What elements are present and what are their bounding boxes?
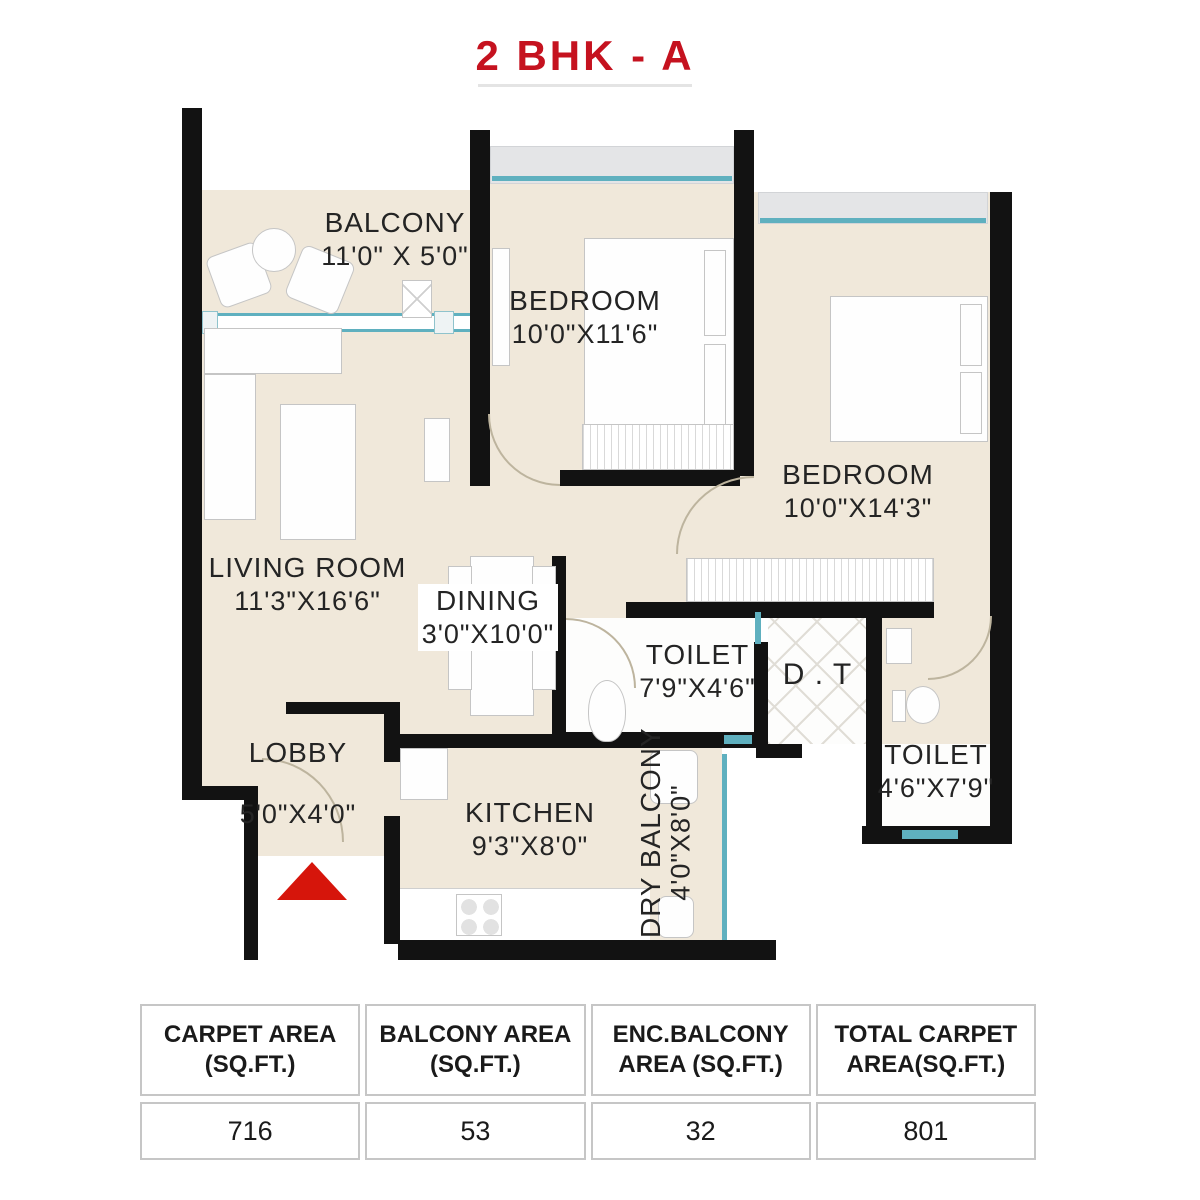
area-col-enc-balcony: ENC.BALCONY AREA (SQ.FT.) 32: [591, 1004, 811, 1160]
room-dims: 3'0"X10'0": [418, 618, 558, 651]
area-value-carpet: 716: [140, 1102, 360, 1160]
area-header-total-carpet: TOTAL CARPET AREA(SQ.FT.): [816, 1004, 1036, 1096]
entrance-arrow: [277, 862, 347, 900]
toilet-2-wc-tank: [892, 690, 906, 722]
bedroom-2-pillow-2: [960, 372, 982, 434]
room-dims: 10'0"X14'3": [733, 492, 983, 525]
room-dims: 7'9"X4'6": [600, 672, 795, 705]
room-label-toilet-1: TOILET 7'9"X4'6": [600, 638, 795, 705]
toilet-2-wc-bowl: [906, 686, 940, 724]
room-dims: 9'3"X8'0": [420, 830, 640, 863]
area-value-total-carpet: 801: [816, 1102, 1036, 1160]
room-name: BALCONY: [270, 206, 520, 240]
room-name: DINING: [418, 584, 558, 618]
living-side-unit: [424, 418, 450, 482]
room-name: BEDROOM: [733, 458, 983, 492]
toilet-2-window: [902, 830, 958, 839]
bedroom-2-wardrobe: [686, 558, 934, 602]
area-value-balcony: 53: [365, 1102, 585, 1160]
area-header-carpet: CARPET AREA (SQ.FT.): [140, 1004, 360, 1096]
room-name: KITCHEN: [420, 796, 640, 830]
area-header-balcony: BALCONY AREA (SQ.FT.): [365, 1004, 585, 1096]
room-label-bedroom-1: BEDROOM 10'0"X11'6": [460, 284, 710, 351]
room-name: LOBBY: [218, 736, 378, 770]
wall-bottom: [398, 940, 776, 960]
room-label-duct: D . T: [770, 658, 865, 692]
dining-chair-2: [448, 648, 472, 690]
wall-corridor: [626, 602, 934, 618]
header-line-2: (SQ.FT.): [142, 1050, 358, 1080]
room-name: LIVING ROOM: [185, 551, 430, 585]
room-label-dining: DINING 3'0"X10'0": [418, 584, 558, 651]
bedroom-2-pillow-1: [960, 304, 982, 366]
area-col-total-carpet: TOTAL CARPET AREA(SQ.FT.) 801: [816, 1004, 1036, 1160]
wall-bedroom-1-bottom: [560, 470, 740, 486]
area-header-enc-balcony: ENC.BALCONY AREA (SQ.FT.): [591, 1004, 811, 1096]
wall-lobby-right-lower: [384, 816, 400, 944]
area-col-carpet: CARPET AREA (SQ.FT.) 716: [140, 1004, 360, 1160]
area-table: CARPET AREA (SQ.FT.) 716 BALCONY AREA (S…: [140, 1004, 1036, 1160]
header-line-2: AREA(SQ.FT.): [818, 1050, 1034, 1080]
header-line-2: (SQ.FT.): [367, 1050, 583, 1080]
kitchen-stove: [456, 894, 502, 936]
room-label-toilet-2: TOILET 4'6"X7'9": [872, 738, 1000, 805]
center-table: [280, 404, 356, 540]
room-name: BEDROOM: [460, 284, 710, 318]
room-label-lobby: LOBBY 5'0"X4'0": [218, 736, 378, 831]
bedroom-2-window: [760, 218, 986, 223]
room-label-balcony: BALCONY 11'0" X 5'0": [270, 206, 520, 273]
bedroom-1-wardrobe: [582, 424, 734, 470]
shaft-box: [402, 280, 432, 318]
header-line-1: ENC.BALCONY: [593, 1020, 809, 1050]
area-value-enc-balcony: 32: [591, 1102, 811, 1160]
balcony-window-cap-right: [434, 311, 454, 334]
kitchen-door-gap: [384, 762, 400, 818]
room-dims: 10'0"X11'6": [460, 318, 710, 351]
wall-dry-balcony-stub: [756, 744, 802, 758]
bedroom-1-window: [492, 176, 732, 181]
header-line-1: CARPET AREA: [142, 1020, 358, 1050]
dining-chair-4: [532, 648, 556, 690]
room-name: TOILET: [872, 738, 1000, 772]
sofa-side: [204, 374, 256, 520]
room-dims: 5'0"X4'0": [218, 798, 378, 831]
header-line-1: TOTAL CARPET: [818, 1020, 1034, 1050]
room-label-dry-balcony-name: DRY BALCONY: [634, 748, 668, 938]
header-line-2: AREA (SQ.FT.): [593, 1050, 809, 1080]
bedroom-1-pillow-2: [704, 344, 726, 430]
header-line-1: BALCONY AREA: [367, 1020, 583, 1050]
plan-title: 2 BHK - A: [385, 32, 785, 80]
wall-left-outer: [182, 108, 202, 798]
dry-balcony-window: [722, 754, 727, 940]
title-underline: [478, 84, 692, 87]
room-label-dry-balcony-dims: 4'0"X8'0": [665, 783, 698, 903]
wall-lobby-right-upper: [384, 702, 400, 762]
room-label-living-room: LIVING ROOM 11'3"X16'6": [185, 551, 430, 618]
room-dims: 4'6"X7'9": [872, 772, 1000, 805]
kitchen-counter: [398, 888, 650, 941]
wall-between-bedrooms: [734, 130, 754, 476]
area-col-balcony: BALCONY AREA (SQ.FT.) 53: [365, 1004, 585, 1160]
room-label-kitchen: KITCHEN 9'3"X8'0": [420, 796, 640, 863]
room-name: TOILET: [600, 638, 795, 672]
room-name: D . T: [770, 658, 865, 692]
sofa-back: [204, 328, 342, 374]
kitchen-fridge: [400, 748, 448, 800]
toilet-2-washbasin: [886, 628, 912, 664]
floor-plan-page: 2 BHK - A: [0, 0, 1200, 1200]
room-dims: 11'0" X 5'0": [270, 240, 520, 273]
toilet-1-window: [724, 735, 752, 744]
room-dims: 11'3"X16'6": [185, 585, 430, 618]
wall-lobby-top: [286, 702, 390, 714]
room-label-bedroom-2: BEDROOM 10'0"X14'3": [733, 458, 983, 525]
